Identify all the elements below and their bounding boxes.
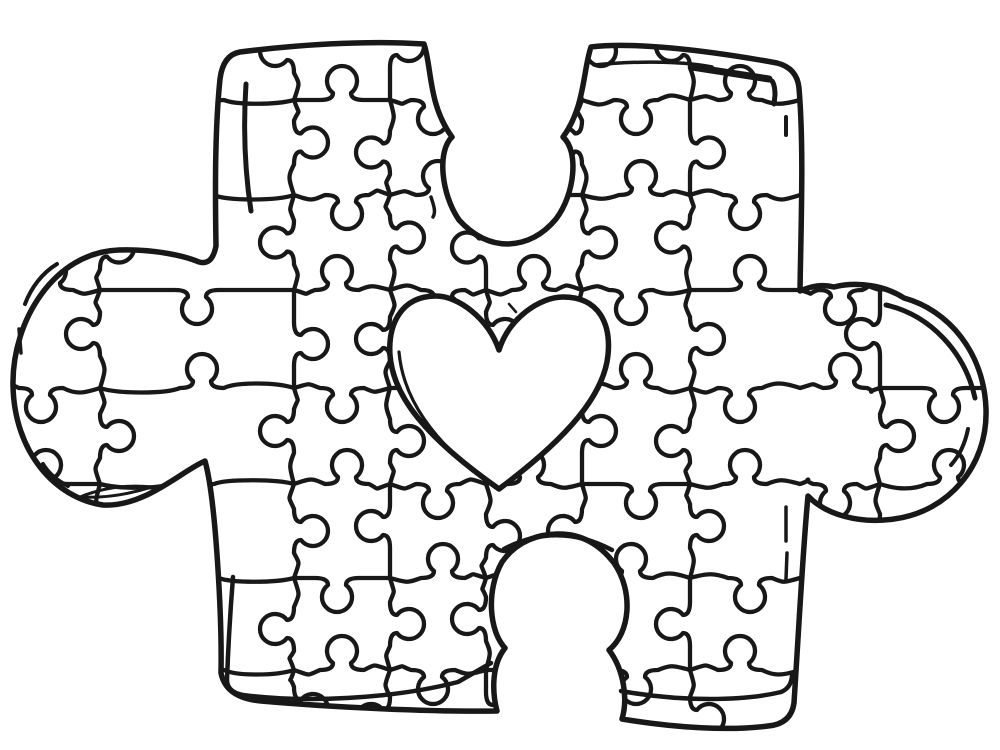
highlight-corner-top-right — [772, 81, 775, 104]
highlight-dash-right-lower-2 — [786, 553, 787, 579]
puzzle-heart-artwork — [0, 0, 1000, 750]
coloring-page — [0, 0, 1000, 750]
